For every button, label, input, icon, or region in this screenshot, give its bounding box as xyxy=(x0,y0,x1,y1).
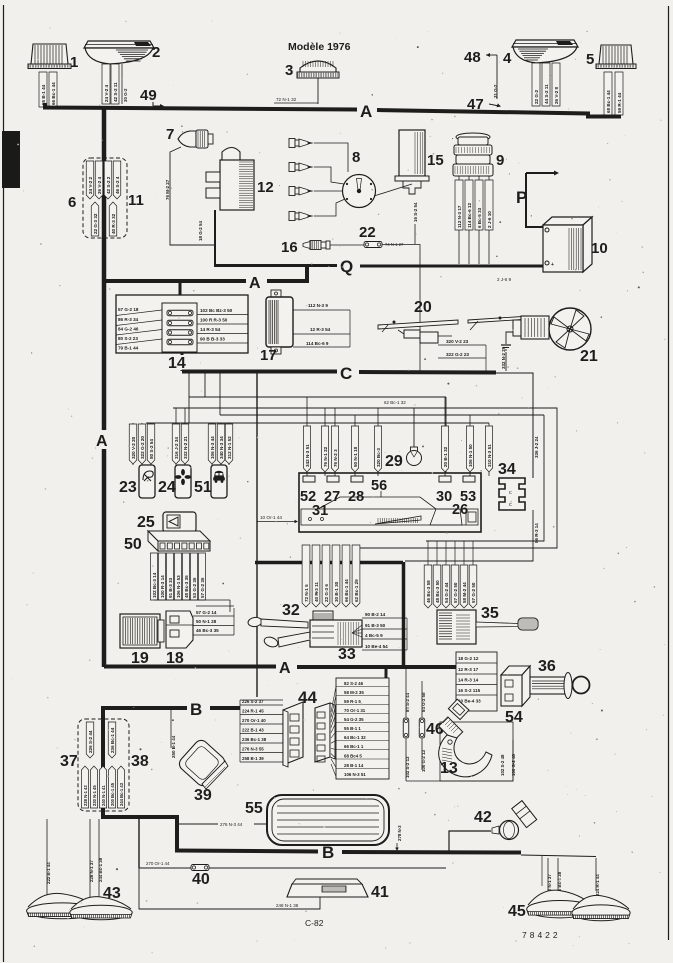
svg-text:66 Bc-1 44: 66 Bc-1 44 xyxy=(51,82,56,105)
svg-text:53 G-2 35: 53 G-2 35 xyxy=(192,577,197,598)
svg-text:C-82: C-82 xyxy=(305,918,324,928)
svg-text:16 S-2 115: 16 S-2 115 xyxy=(458,688,481,693)
svg-text:342 N-3 51: 342 N-3 51 xyxy=(305,444,310,467)
svg-text:320 Bc-3: 320 Bc-3 xyxy=(376,448,381,467)
svg-text:46 Bc-3 58: 46 Bc-3 58 xyxy=(426,580,431,603)
svg-text:112 N-3 17: 112 N-3 17 xyxy=(457,205,462,228)
svg-text:5: 5 xyxy=(586,51,594,68)
svg-text:36: 36 xyxy=(538,658,556,675)
svg-text:57 G-2 35: 57 G-2 35 xyxy=(200,577,205,598)
svg-text:200 Bc-1 45: 200 Bc-1 45 xyxy=(110,782,115,806)
svg-text:276 N-3 44: 276 N-3 44 xyxy=(220,822,243,827)
svg-text:62 Bc-1 32: 62 Bc-1 32 xyxy=(384,400,406,405)
svg-text:106 N-3 44: 106 N-3 44 xyxy=(210,436,215,459)
svg-text:102 Bc Bz-3 50: 102 Bc Bz-3 50 xyxy=(200,308,233,313)
svg-text:22 G-2: 22 G-2 xyxy=(534,90,539,104)
svg-text:10: 10 xyxy=(591,240,608,257)
svg-text:10 Or-1 44: 10 Or-1 44 xyxy=(260,515,282,520)
svg-text:3: 3 xyxy=(285,62,293,79)
svg-text:6: 6 xyxy=(68,194,76,211)
svg-text:270 Or-1 40: 270 Or-1 40 xyxy=(242,718,266,723)
svg-text:19: 19 xyxy=(131,650,149,667)
svg-text:A: A xyxy=(360,102,372,121)
svg-text:100 G-2 13: 100 G-2 13 xyxy=(421,749,426,772)
svg-text:66 Bc-1 44: 66 Bc-1 44 xyxy=(344,579,349,602)
svg-text:312 N-1 52: 312 N-1 52 xyxy=(227,436,232,459)
svg-text:340 N-3 34: 340 N-3 34 xyxy=(219,436,224,459)
svg-text:46 S-2 4: 46 S-2 4 xyxy=(115,176,120,194)
svg-text:55 B-1 44: 55 B-1 44 xyxy=(41,84,46,105)
svg-text:46 Bc-3 35: 46 Bc-3 35 xyxy=(196,628,219,633)
svg-text:244 Bc-1 38: 244 Bc-1 38 xyxy=(98,857,103,882)
svg-text:13: 13 xyxy=(440,760,458,777)
svg-text:c: c xyxy=(509,502,512,508)
svg-text:316 J-2 34: 316 J-2 34 xyxy=(174,437,179,459)
svg-text:76 N-2 3: 76 N-2 3 xyxy=(333,449,338,467)
svg-text:224 R-1 44: 224 R-1 44 xyxy=(595,874,600,896)
svg-text:91 B-3 50: 91 B-3 50 xyxy=(365,623,386,628)
svg-text:20: 20 xyxy=(414,299,432,316)
svg-text:58 M-2 44: 58 M-2 44 xyxy=(462,582,467,603)
svg-text:222 B-1 43: 222 B-1 43 xyxy=(242,728,264,733)
svg-text:12 R-3 17: 12 R-3 17 xyxy=(458,667,479,672)
svg-text:+: + xyxy=(551,262,554,268)
svg-text:230 N-1 45: 230 N-1 45 xyxy=(92,785,97,806)
svg-text:224 R-1 45: 224 R-1 45 xyxy=(242,709,264,714)
svg-text:50: 50 xyxy=(124,536,142,553)
svg-text:20 B-1 32: 20 B-1 32 xyxy=(443,446,448,467)
svg-text:28 B-1 14: 28 B-1 14 xyxy=(344,763,364,768)
svg-text:336 J-2 24: 336 J-2 24 xyxy=(534,436,539,458)
svg-text:38: 38 xyxy=(131,753,149,770)
svg-text:102 S-2 13: 102 S-2 13 xyxy=(405,756,410,778)
svg-text:50 N-1 28: 50 N-1 28 xyxy=(196,619,217,624)
svg-text:310 N-3 51: 310 N-3 51 xyxy=(487,444,492,467)
svg-text:C: C xyxy=(340,364,352,383)
svg-text:90 B B-3 33: 90 B B-3 33 xyxy=(200,337,225,342)
svg-text:26: 26 xyxy=(452,502,468,518)
svg-text:4: 4 xyxy=(503,50,512,67)
svg-text:59 R-1 44: 59 R-1 44 xyxy=(617,92,622,113)
svg-text:86 R-3 34: 86 R-3 34 xyxy=(118,317,139,322)
svg-text:14 R-3 14: 14 R-3 14 xyxy=(458,678,479,683)
svg-text:55: 55 xyxy=(245,800,263,817)
svg-text:57 G-2 14: 57 G-2 14 xyxy=(196,610,217,615)
svg-text:66 Bc-1 1: 66 Bc-1 1 xyxy=(344,744,364,749)
svg-text:100 R-3 14: 100 R-3 14 xyxy=(160,575,165,598)
svg-text:322 G-2 20: 322 G-2 20 xyxy=(140,436,145,459)
svg-text:248 N-1 38: 248 N-1 38 xyxy=(276,903,299,908)
svg-text:39: 39 xyxy=(194,787,212,804)
svg-text:100 R R-3 50: 100 R R-3 50 xyxy=(200,318,228,323)
svg-text:22: 22 xyxy=(359,224,376,241)
svg-text:322 G-2 23: 322 G-2 23 xyxy=(446,352,469,357)
svg-text:30 G-2: 30 G-2 xyxy=(123,88,128,102)
svg-text:228 N-1 43: 228 N-1 43 xyxy=(83,785,88,806)
svg-text:59 R-1 5: 59 R-1 5 xyxy=(344,699,361,704)
svg-text:258 B-1 39: 258 B-1 39 xyxy=(242,756,264,761)
svg-text:57 G-2 50: 57 G-2 50 xyxy=(453,582,458,603)
svg-text:26 V-2 4: 26 V-2 4 xyxy=(97,176,102,194)
svg-text:114 Bc-6 12: 114 Bc-6 12 xyxy=(467,203,472,228)
svg-text:114 Bc-6 9: 114 Bc-6 9 xyxy=(306,341,329,346)
svg-text:276 N-3 55: 276 N-3 55 xyxy=(242,747,264,752)
svg-text:7: 7 xyxy=(166,126,174,143)
svg-text:72 N-1 32: 72 N-1 32 xyxy=(276,97,297,102)
svg-text:33: 33 xyxy=(338,646,356,663)
svg-text:320 V-2 20: 320 V-2 20 xyxy=(131,436,136,459)
svg-text:16 S-2 54: 16 S-2 54 xyxy=(413,202,418,222)
svg-text:228 N-1 37: 228 N-1 37 xyxy=(89,860,94,882)
svg-text:45: 45 xyxy=(508,903,526,920)
svg-text:2: 2 xyxy=(152,44,160,61)
svg-text:40: 40 xyxy=(192,871,210,888)
svg-text:42 S-2 2: 42 S-2 2 xyxy=(106,176,111,194)
svg-text:79 B-1 44: 79 B-1 44 xyxy=(118,346,139,351)
svg-text:34: 34 xyxy=(498,461,516,478)
svg-text:10 Be-4 54: 10 Be-4 54 xyxy=(365,644,388,649)
svg-text:106 N-1 53: 106 N-1 53 xyxy=(176,575,181,598)
svg-text:57 G-2 18: 57 G-2 18 xyxy=(118,307,139,312)
svg-text:48 Bc-3 50: 48 Bc-3 50 xyxy=(435,580,440,603)
svg-text:64 Bc-1 32: 64 Bc-1 32 xyxy=(344,735,366,740)
svg-text:P: P xyxy=(516,188,527,207)
svg-text:26 V-2 8: 26 V-2 8 xyxy=(554,86,559,104)
svg-text:A: A xyxy=(249,275,261,292)
svg-text:55 B-1 1: 55 B-1 1 xyxy=(344,726,361,731)
svg-text:A: A xyxy=(96,433,108,450)
svg-text:332 N-2 21: 332 N-2 21 xyxy=(183,436,188,459)
svg-text:80 S-2 23: 80 S-2 23 xyxy=(118,336,138,341)
svg-text:78422: 78422 xyxy=(522,930,561,940)
svg-text:270 Or-1 44: 270 Or-1 44 xyxy=(146,861,170,866)
svg-text:240 N-1 41: 240 N-1 41 xyxy=(101,785,106,806)
svg-text:54 G-2 35: 54 G-2 35 xyxy=(344,717,364,722)
svg-text:1: 1 xyxy=(70,54,78,71)
svg-text:18 G-2 54: 18 G-2 54 xyxy=(198,220,203,241)
svg-text:90 B-2 14: 90 B-2 14 xyxy=(365,612,386,617)
svg-text:29: 29 xyxy=(385,453,403,470)
svg-text:244 Bc-1 43: 244 Bc-1 43 xyxy=(119,782,124,806)
svg-text:49: 49 xyxy=(140,87,157,104)
svg-text:70 Or-1 31: 70 Or-1 31 xyxy=(344,708,366,713)
svg-text:32: 32 xyxy=(282,602,300,619)
svg-text:48 Bc-3 35: 48 Bc-3 35 xyxy=(184,575,189,598)
svg-text:86 R-3 14: 86 R-3 14 xyxy=(534,523,539,543)
svg-text:250 B-1 44: 250 B-1 44 xyxy=(171,735,176,758)
svg-text:22 G-3 32: 22 G-3 32 xyxy=(93,213,98,234)
svg-text:18: 18 xyxy=(166,650,184,667)
svg-text:2 J-6 9: 2 J-6 9 xyxy=(497,277,511,282)
svg-text:42 S-2 11: 42 S-2 11 xyxy=(113,82,118,102)
svg-text:Modèle 1976: Modèle 1976 xyxy=(288,41,351,53)
svg-text:16: 16 xyxy=(281,239,298,256)
svg-text:18 G-2 12: 18 G-2 12 xyxy=(458,656,479,661)
svg-text:43: 43 xyxy=(103,885,121,902)
svg-text:24 V-2 2: 24 V-2 2 xyxy=(88,176,93,194)
svg-text:35: 35 xyxy=(481,605,499,622)
svg-text:84 G-2 46: 84 G-2 46 xyxy=(118,327,139,332)
svg-text:12 R-3 54: 12 R-3 54 xyxy=(310,327,331,332)
svg-text:c: c xyxy=(509,490,512,496)
svg-text:84 G-2 58: 84 G-2 58 xyxy=(421,692,426,712)
svg-text:25: 25 xyxy=(137,514,155,531)
svg-text:14: 14 xyxy=(168,355,186,372)
svg-text:102 S-2 48: 102 S-2 48 xyxy=(500,754,505,776)
svg-text:76 M-2 27: 76 M-2 27 xyxy=(165,179,170,200)
svg-text:6 Bc-5 33: 6 Bc-5 33 xyxy=(477,207,482,228)
svg-text:2 J-6 10: 2 J-6 10 xyxy=(487,211,492,228)
svg-text:44: 44 xyxy=(298,688,317,707)
svg-text:40 R-3 32: 40 R-3 32 xyxy=(111,213,116,234)
svg-text:21: 21 xyxy=(580,348,598,365)
svg-text:48: 48 xyxy=(464,49,481,66)
svg-text:22 G-3 6: 22 G-3 6 xyxy=(324,584,329,602)
svg-text:8: 8 xyxy=(352,149,360,166)
svg-text:222 B-1 44: 222 B-1 44 xyxy=(46,862,51,884)
svg-text:54 G-2 44: 54 G-2 44 xyxy=(444,582,449,603)
svg-text:30: 30 xyxy=(436,489,452,505)
svg-text:68 Bc4 5: 68 Bc4 5 xyxy=(344,754,362,759)
svg-text:68 Bc-1 44: 68 Bc-1 44 xyxy=(606,90,611,113)
svg-text:50 N-1 18: 50 N-1 18 xyxy=(353,446,358,467)
svg-text:56: 56 xyxy=(371,478,387,494)
svg-text:58 M-2 35: 58 M-2 35 xyxy=(344,690,364,695)
svg-text:320 V-2 23: 320 V-2 23 xyxy=(446,339,469,344)
svg-text:106 N-3 51: 106 N-3 51 xyxy=(344,772,366,777)
svg-text:51: 51 xyxy=(194,479,212,496)
svg-text:57 G-2 50: 57 G-2 50 xyxy=(471,582,476,603)
svg-text:226 S-2 44: 226 S-2 44 xyxy=(88,730,93,753)
svg-text:278 N-3: 278 N-3 xyxy=(397,825,402,841)
svg-text:24 V-2 4: 24 V-2 4 xyxy=(104,84,109,102)
svg-text:41: 41 xyxy=(371,884,389,901)
svg-text:11: 11 xyxy=(128,192,144,209)
svg-text:100 G-2 48: 100 G-2 48 xyxy=(511,753,516,776)
svg-text:9: 9 xyxy=(496,152,504,169)
svg-text:31: 31 xyxy=(312,503,328,519)
svg-text:102 Bc-3 14: 102 Bc-3 14 xyxy=(152,572,157,598)
svg-text:12: 12 xyxy=(257,179,274,196)
svg-text:24: 24 xyxy=(158,479,176,496)
svg-text:54: 54 xyxy=(505,709,523,726)
svg-text:17: 17 xyxy=(260,347,277,364)
svg-text:236 Bc-1 38: 236 Bc-1 38 xyxy=(242,737,267,742)
svg-text:112 N-3 9: 112 N-3 9 xyxy=(308,303,328,308)
svg-text:14 R-3 54: 14 R-3 54 xyxy=(200,327,221,332)
svg-text:4 Bc-5 9: 4 Bc-5 9 xyxy=(365,633,383,638)
svg-text:236 Bc-1 44: 236 Bc-1 44 xyxy=(110,727,115,753)
svg-text:37: 37 xyxy=(60,753,78,770)
svg-text:44 S-2 11: 44 S-2 11 xyxy=(544,84,549,104)
svg-text:30 B-1 30: 30 B-1 30 xyxy=(334,581,339,602)
svg-text:15: 15 xyxy=(427,152,444,169)
svg-text:82 S-2 46: 82 S-2 46 xyxy=(344,681,364,686)
svg-text:72 N-1 5: 72 N-1 5 xyxy=(304,584,309,602)
svg-text:31 G-2: 31 G-2 xyxy=(493,84,498,98)
svg-text:91 B-3 33: 91 B-3 33 xyxy=(168,577,173,598)
svg-text:332 N-2 29: 332 N-2 29 xyxy=(501,346,506,369)
svg-text:B: B xyxy=(190,700,202,719)
svg-text:23: 23 xyxy=(119,479,137,496)
svg-text:106 N-1 50: 106 N-1 50 xyxy=(468,444,473,467)
svg-text:80 S-2 54: 80 S-2 54 xyxy=(149,439,154,459)
svg-text:42: 42 xyxy=(474,809,492,826)
svg-text:A: A xyxy=(279,660,291,677)
svg-text:76 N-1 22: 76 N-1 22 xyxy=(323,446,328,467)
